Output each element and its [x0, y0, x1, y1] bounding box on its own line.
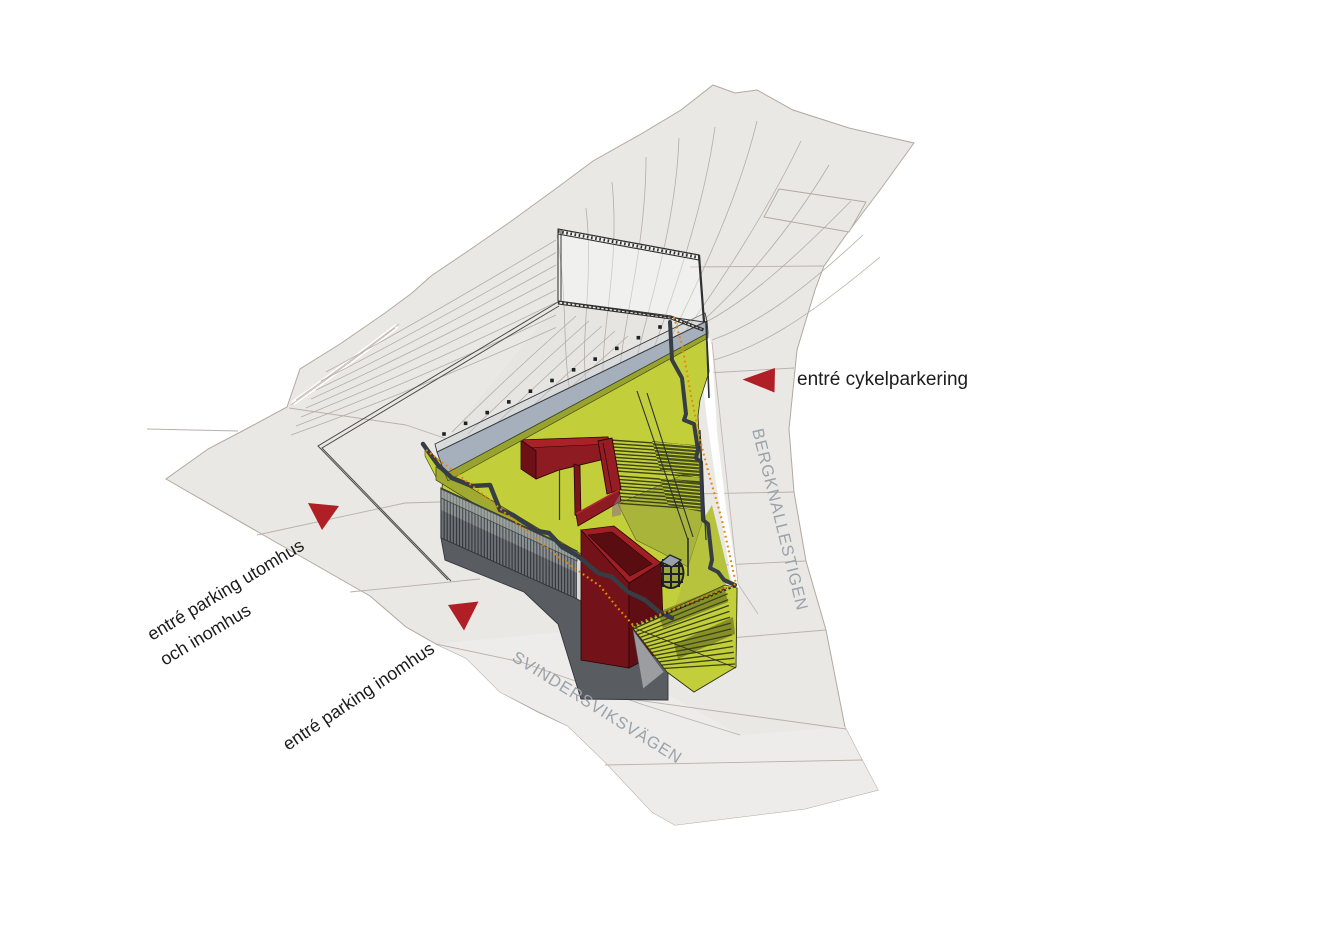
svg-text:entré parking inomhus: entré parking inomhus	[279, 638, 438, 754]
svg-text:entré cykelparkering: entré cykelparkering	[797, 369, 968, 390]
